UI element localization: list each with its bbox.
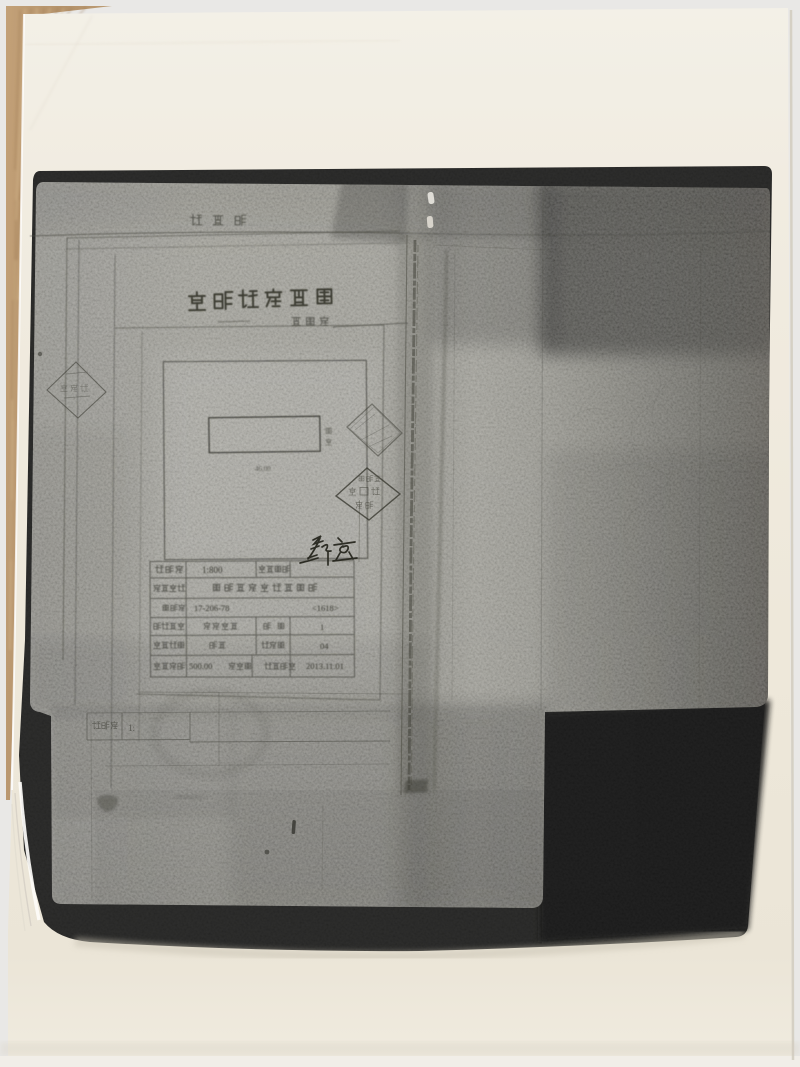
svg-text:1:800: 1:800 (202, 565, 223, 575)
svg-text:17-206-78: 17-206-78 (194, 603, 229, 613)
svg-text:04: 04 (320, 641, 329, 651)
svg-text:2013.11.01: 2013.11.01 (306, 661, 344, 671)
svg-text:<1618>: <1618> (312, 603, 339, 613)
svg-text:1:: 1: (128, 723, 135, 733)
svg-text:46.00: 46.00 (255, 465, 271, 473)
svg-text:500.00: 500.00 (189, 661, 212, 671)
svg-text:1: 1 (320, 622, 324, 632)
